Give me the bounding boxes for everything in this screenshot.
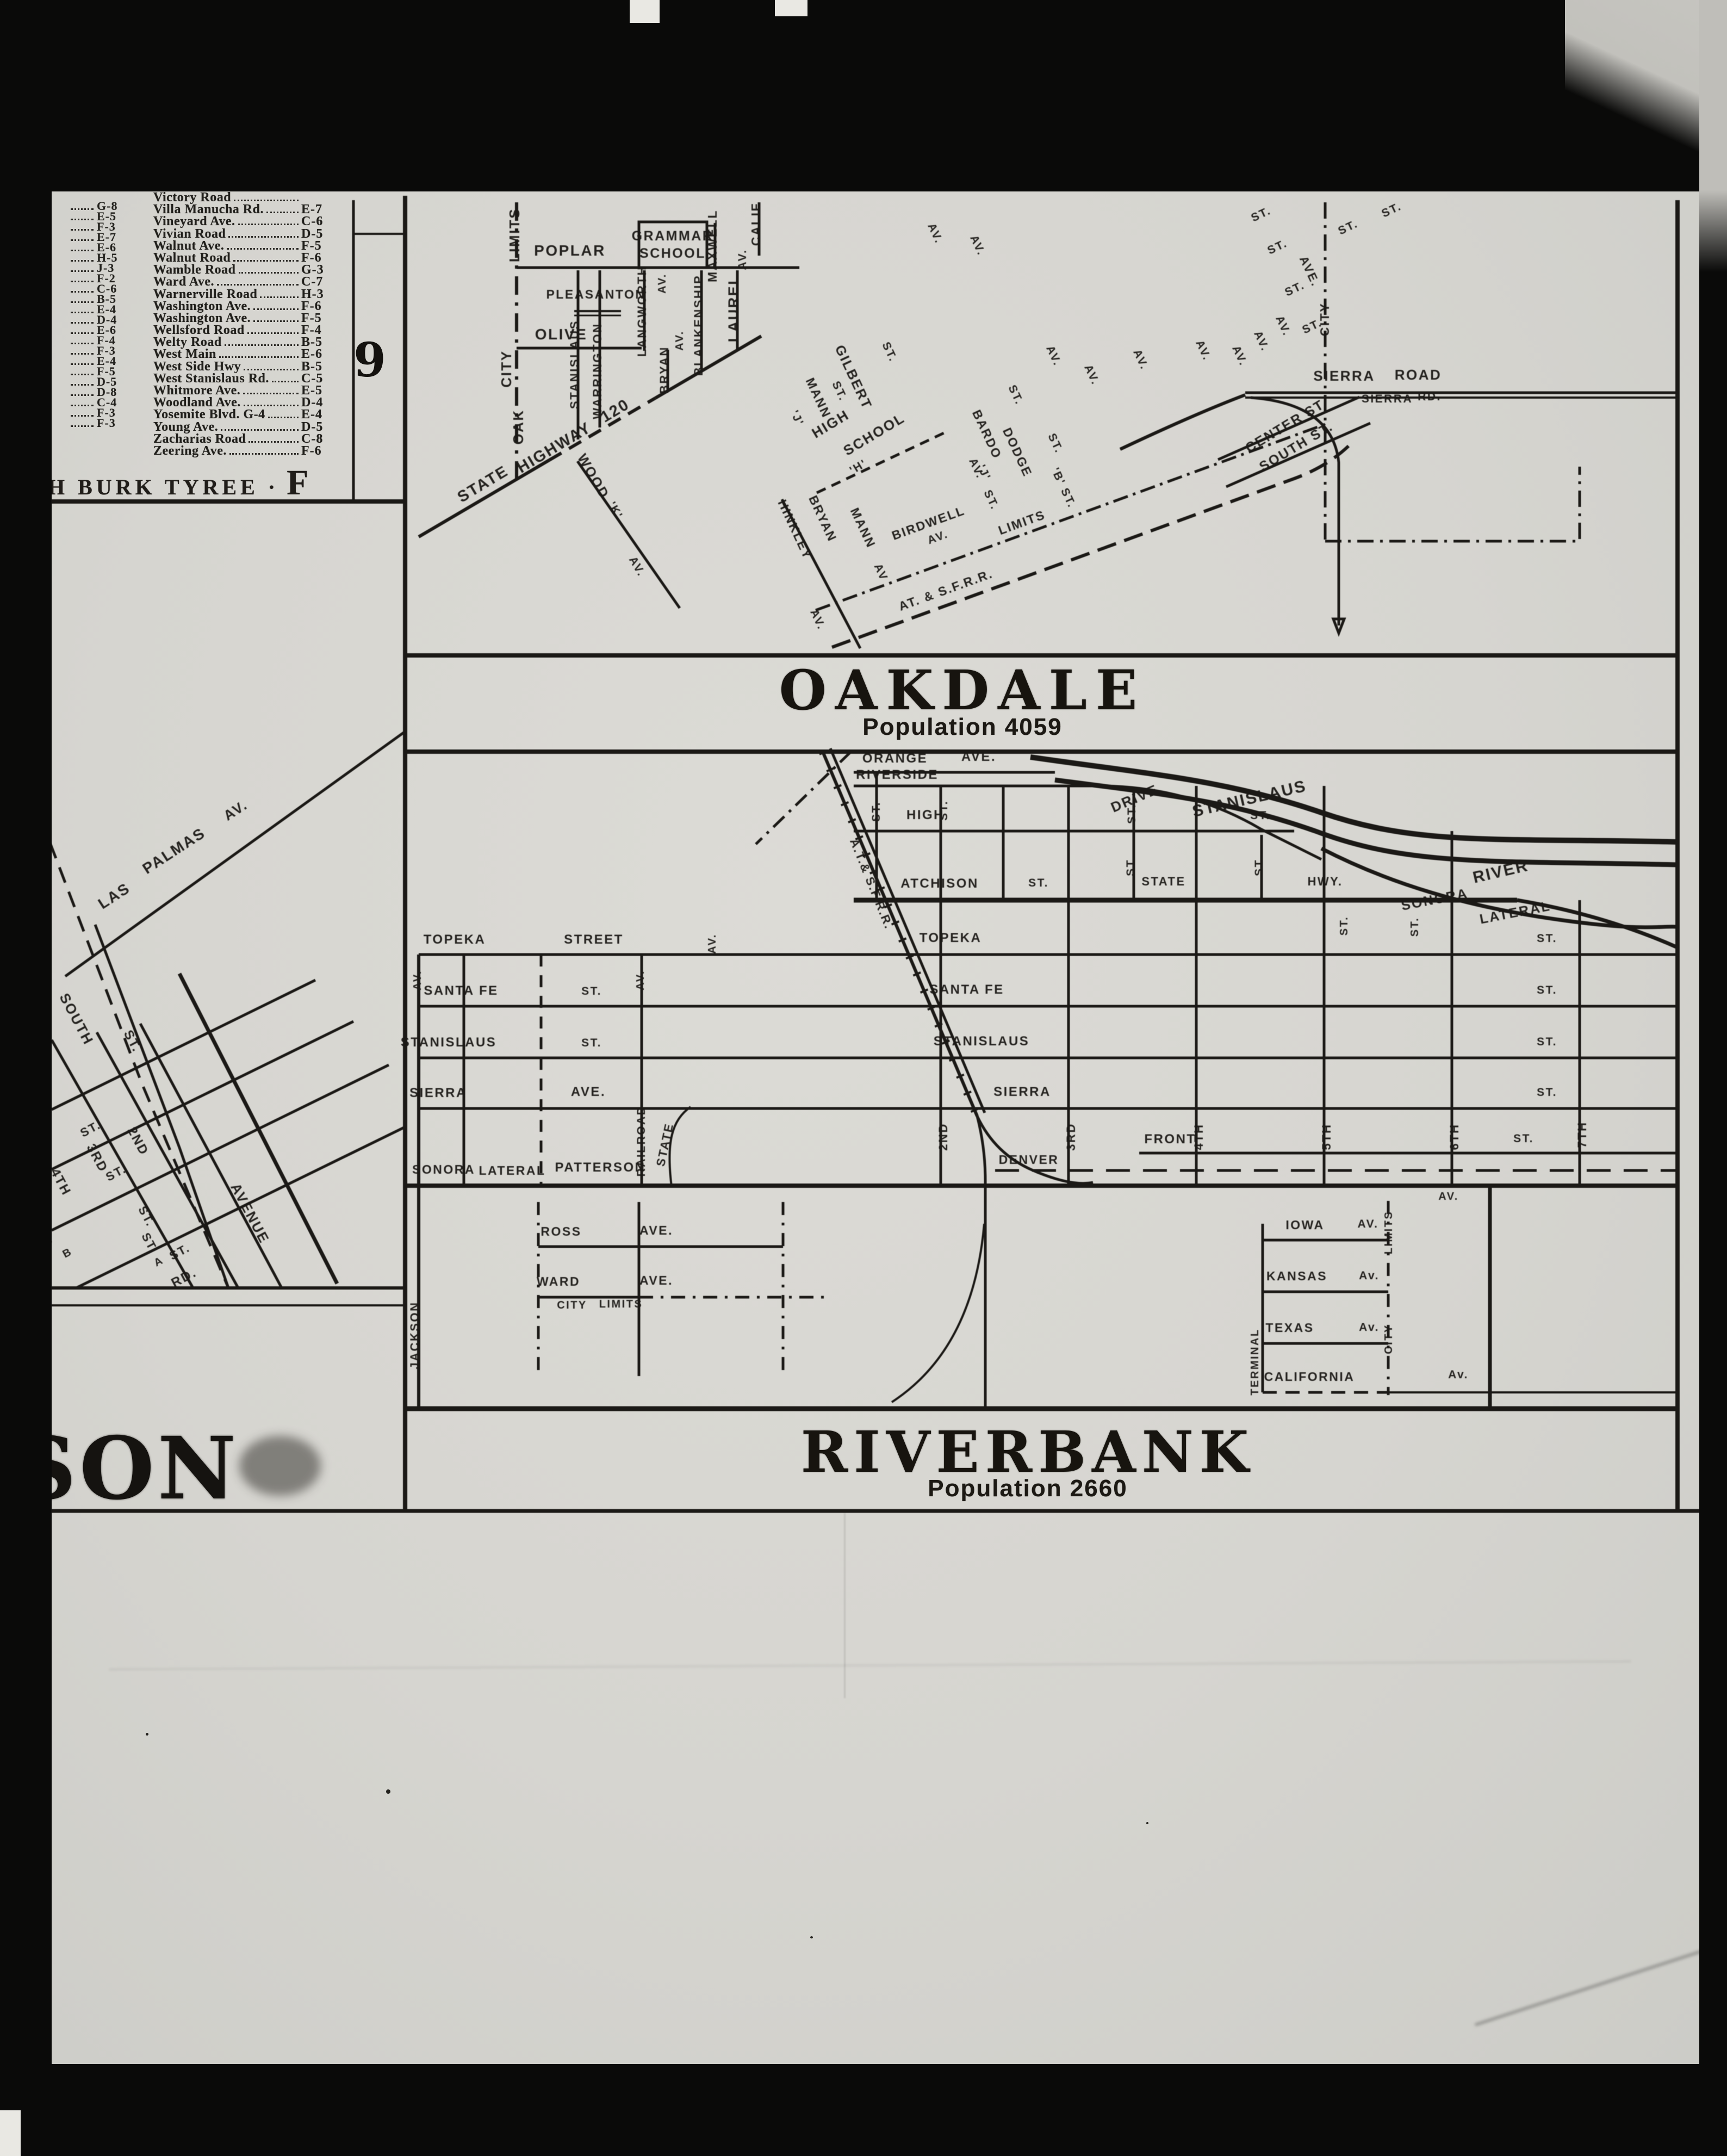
street-label: Av.: [1448, 1368, 1469, 1381]
street-label: SONORA: [412, 1162, 475, 1176]
index-row: Vivian RoadD-5: [153, 227, 333, 239]
street-label: SIERRA: [1362, 393, 1413, 405]
street-label: BRYAN: [806, 493, 840, 544]
index-row: Yosemite Blvd. G-4E-4: [153, 407, 333, 419]
street-label: STATE: [654, 1122, 676, 1168]
street-label: DODGE: [1000, 425, 1035, 479]
street-label: LANGWORTH: [635, 265, 649, 357]
index-row: Victory Road: [153, 190, 333, 202]
street-label: ST.: [829, 379, 849, 403]
street-label: STANISLAUS: [934, 1034, 1030, 1049]
street-label: AV.: [412, 970, 424, 990]
street-label: 5TH: [1320, 1123, 1333, 1150]
street-label: TERMINAL: [1249, 1328, 1261, 1395]
street-label: AV.: [674, 330, 686, 351]
index-footer: H BURK TYREE · F: [48, 462, 308, 504]
street-index: Victory RoadVilla Manucha Rd.E-7Vineyard…: [153, 190, 333, 456]
street-label: 'J': [788, 408, 806, 428]
street-label: 2ND: [125, 1125, 152, 1158]
left-map-streets: [41, 732, 405, 1288]
index-row: Warnerville RoadH-3: [153, 287, 333, 299]
index-row: E-6: [71, 240, 125, 251]
street-label: 6TH: [1448, 1123, 1461, 1150]
street-label: RAILROAD: [635, 1106, 648, 1177]
street-label: ATCHISON: [900, 876, 979, 891]
street-label: SONORA: [1400, 886, 1470, 914]
index-row: Wamble RoadG-3: [153, 263, 333, 275]
street-label: SCHOOL: [841, 410, 908, 459]
index-row: H-5: [71, 251, 125, 261]
index-row: E-5: [71, 209, 125, 220]
index-row: D-8: [71, 385, 125, 395]
street-label: AVE.: [639, 1273, 673, 1287]
index-footer-label: H BURK TYREE ·: [48, 474, 279, 500]
riverbank-population: Population 2660: [783, 1475, 1272, 1502]
street-label: SIERRA: [993, 1085, 1051, 1099]
street-label: A: [152, 1254, 166, 1269]
street-label: 'K': [606, 500, 625, 522]
street-label: FRONT: [1144, 1132, 1196, 1147]
index-row: C-4: [71, 395, 125, 406]
street-label: LIMITS: [996, 507, 1047, 537]
street-label: ST.: [1537, 984, 1557, 996]
street-label: SANTA FE: [929, 982, 1004, 997]
street-label: RIVERSIDE: [856, 767, 939, 782]
street-label: 'H': [848, 457, 869, 477]
street-label: AV.: [1438, 1191, 1459, 1203]
street-label: STANISLAUS: [568, 320, 581, 409]
index-footer-letter: F: [287, 462, 308, 504]
street-label: ORANGE: [862, 751, 928, 766]
street-label: SOUTH: [56, 990, 97, 1048]
street-label: ST.: [1380, 200, 1403, 220]
street-label: CALIFORNIA: [1264, 1370, 1355, 1384]
street-label: ST.: [139, 1230, 161, 1255]
index-row: Washington Ave.F-5: [153, 311, 333, 323]
street-label: STREET: [564, 932, 624, 947]
oakdale-population: Population 4059: [745, 714, 1180, 741]
las-palmas-avenue: [65, 732, 405, 976]
street-label: DENVER: [999, 1153, 1059, 1167]
index-row: E-4: [71, 302, 125, 313]
street-label: CITY: [557, 1299, 587, 1311]
street-label: AV.: [1273, 314, 1293, 338]
street-label: IOWA: [1285, 1218, 1324, 1232]
street-label: LATERAL: [479, 1163, 545, 1178]
street-label: AVENUE: [227, 1180, 272, 1246]
index-row: Zacharias RoadC-8: [153, 432, 333, 444]
street-label: AV.: [656, 273, 668, 294]
street-label: ST.: [1028, 877, 1049, 889]
street-label: AV.: [220, 796, 250, 824]
street-label: ST.: [1537, 1036, 1557, 1048]
street-label: ST.: [1249, 205, 1273, 225]
index-row: Ward Ave.C-7: [153, 275, 333, 287]
street-label: AV.: [967, 233, 987, 258]
margin-number: 9: [353, 333, 386, 388]
index-row: F-4: [71, 333, 125, 344]
index-row: G-8: [71, 199, 125, 209]
street-label: HINKLEY: [775, 497, 815, 561]
street-label: STANISLAUS: [401, 1035, 497, 1050]
ink-smudge: [239, 1436, 321, 1496]
index-row: F-3: [71, 344, 125, 354]
scan-border-right: [1699, 0, 1727, 2156]
index-row: Woodland Ave.D-4: [153, 395, 333, 407]
index-row: F-5: [71, 364, 125, 375]
scanned-map-page: LIMITSCITYOAKPOPLARGRAMMARSCHOOLMAXWELLA…: [0, 0, 1727, 2156]
street-label: AV.: [1193, 338, 1213, 363]
index-row: J-3: [71, 261, 125, 271]
street-label: AV.: [1130, 348, 1151, 372]
street-label: AVE.: [961, 749, 996, 764]
index-row: E-7: [71, 230, 125, 240]
street-label: SIERRA: [409, 1086, 467, 1100]
oakdale-title: OAKDALE: [745, 658, 1180, 722]
street-label: ST.: [870, 801, 883, 822]
street-label: SANTA FE: [424, 983, 498, 998]
street-label: AV.: [1229, 344, 1250, 368]
street-label: HWY.: [1308, 875, 1343, 888]
street-label: MAXWELL: [705, 209, 719, 282]
street-label: 'B' ST.: [1049, 466, 1078, 510]
street-label: Av.: [1359, 1269, 1380, 1282]
index-row: Villa Manucha Rd.E-7: [153, 202, 333, 214]
street-label: ST.: [1253, 856, 1265, 876]
street-label: CITY: [498, 350, 514, 387]
street-label: AV.: [1357, 1218, 1378, 1230]
riverbank-streets: [405, 748, 1678, 1409]
street-label: ST.: [1513, 1132, 1534, 1145]
street-label: LATERAL: [1478, 899, 1552, 927]
street-label: LAS: [95, 879, 133, 913]
street-label: SCHOOL: [639, 246, 706, 261]
street-label: BARDO: [970, 407, 1004, 461]
street-label: ST.: [581, 1037, 602, 1049]
scan-border-left: [0, 0, 52, 2156]
index-row: Walnut Ave.F-5: [153, 239, 333, 251]
street-label: ST.: [121, 1028, 145, 1055]
street-label: ST.: [1338, 916, 1350, 935]
street-label: ST.: [1409, 917, 1421, 937]
index-row: Washington Ave.F-6: [153, 299, 333, 311]
street-label: TOPEKA: [424, 932, 486, 947]
scan-border-bottom: [0, 2064, 1727, 2156]
street-label: MANN: [803, 375, 834, 420]
street-label: AV.: [925, 221, 945, 246]
street-label: AV: [872, 562, 891, 583]
street-label: LIMITS: [1383, 1211, 1395, 1255]
street-label: ST.: [1045, 431, 1065, 455]
index-row: West Stanislaus Rd.C-5: [153, 371, 333, 383]
street-label: ST.: [1283, 279, 1307, 299]
index-row: E-6: [71, 323, 125, 333]
street-label: LIMITS: [506, 208, 523, 262]
index-row: D-5: [71, 375, 125, 385]
index-row: F-2: [71, 271, 125, 282]
street-label: KANSAS: [1266, 1269, 1327, 1283]
street-label: POPLAR: [534, 242, 606, 259]
index-row: Wellsford RoadF-4: [153, 323, 333, 335]
index-row: West Side HwyB-5: [153, 360, 333, 371]
street-label: AV.: [807, 608, 828, 632]
street-label: Av.: [1359, 1321, 1380, 1334]
street-label: JACKSON: [408, 1301, 421, 1369]
street-label: AV.: [635, 970, 647, 990]
scan-border-top: [0, 0, 1727, 191]
index-row: Walnut RoadF-6: [153, 251, 333, 263]
street-label: TOPEKA: [920, 931, 982, 945]
street-label: ST.: [1537, 932, 1557, 945]
street-label: BRYAN: [657, 346, 671, 394]
street-label: AVE.: [639, 1223, 673, 1237]
index-row: F-3: [71, 220, 125, 230]
street-label: PALMAS: [139, 824, 208, 877]
street-label: TEXAS: [1265, 1321, 1314, 1335]
street-label: CALIF: [749, 202, 763, 246]
street-label: ST.: [167, 1241, 192, 1263]
index-row: D-4: [71, 313, 125, 323]
street-label: ST.: [981, 488, 1001, 512]
index-row: C-6: [71, 282, 125, 292]
street-label: AV.: [926, 528, 951, 547]
street-label: ST.: [1126, 803, 1138, 824]
street-label: STATE: [1141, 875, 1185, 888]
street-label: WOOD: [574, 451, 612, 501]
street-label: WARRINGTON: [591, 323, 604, 419]
street-label: RD.: [1418, 391, 1442, 403]
street-label: AV.: [1082, 363, 1102, 387]
street-label: CITY: [1383, 1324, 1395, 1354]
street-label: ST.: [937, 800, 950, 821]
street-label: PLEASANTON: [546, 287, 645, 301]
street-label: ST.: [1005, 383, 1026, 407]
street-label: AV.: [706, 933, 718, 954]
oakdale-labels: LIMITSCITYOAKPOPLARGRAMMARSCHOOLMAXWELLA…: [455, 200, 1442, 632]
street-label: WARD: [537, 1274, 580, 1288]
street-label: LAUREL: [725, 275, 742, 343]
index-row: F-3: [71, 416, 125, 426]
index-row: West MainE-6: [153, 347, 333, 359]
riverbank-labels: ORANGEAVE.RIVERSIDEDRIVESTANISLAUSRIVERS…: [401, 749, 1589, 1396]
street-label: 7TH: [1575, 1121, 1589, 1148]
street-label: 3RD: [1064, 1123, 1078, 1151]
street-label: ST.: [1125, 856, 1137, 876]
street-label: MANN: [848, 505, 879, 550]
street-label: 2ND: [936, 1123, 950, 1151]
index-row: F-3: [71, 406, 125, 416]
street-label: PATTERSON: [555, 1160, 646, 1175]
street-label: ST.: [1336, 218, 1360, 238]
street-label: ST.: [581, 985, 602, 998]
street-label: AV.: [736, 249, 749, 270]
street-label: AV.: [1251, 329, 1271, 354]
index-row: B-5: [71, 292, 125, 302]
street-label: GRAMMAR: [632, 228, 714, 244]
street-label: AV.: [1043, 344, 1064, 368]
street-label: B: [61, 1246, 74, 1260]
street-label: ROAD: [1395, 367, 1442, 383]
street-label: ST.: [135, 1204, 158, 1229]
street-label: ST.: [1265, 237, 1289, 257]
street-label: ST.: [879, 340, 899, 364]
street-label: SIERRA: [1313, 368, 1375, 384]
street-label: ST.: [1537, 1086, 1557, 1099]
street-label: LIMITS: [599, 1298, 643, 1310]
street-label: OAK: [510, 409, 526, 444]
street-index-codes-column: G-8E-5F-3E-7E-6H-5J-3F-2C-6B-5E-4D-4E-6F…: [71, 199, 125, 426]
street-label: ST.: [1250, 809, 1271, 822]
street-label: AVE.: [571, 1085, 606, 1099]
street-label: BLANKENSHIP: [692, 275, 705, 376]
index-row: E-4: [71, 354, 125, 364]
street-label: ROSS: [541, 1224, 581, 1238]
